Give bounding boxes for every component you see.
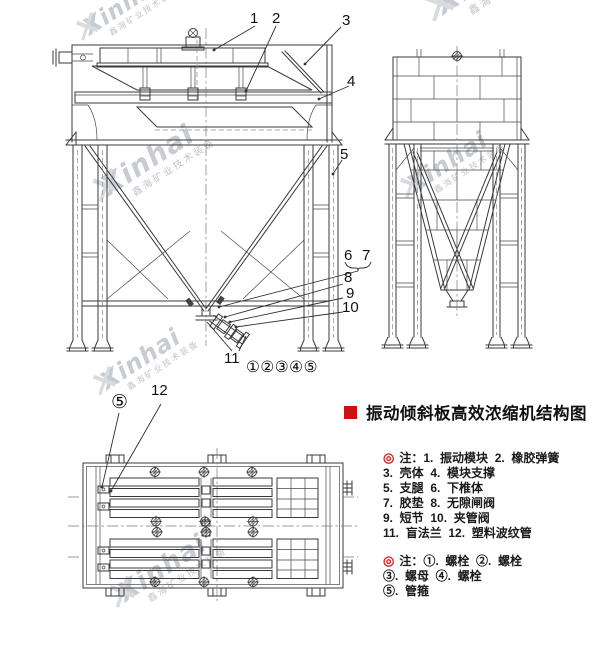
note-line: 3. 壳体 4. 模块支撑 — [383, 466, 605, 481]
note-text: 注：1. 振动模块 2. 橡胶弹簧 — [399, 451, 559, 465]
note-text: 注：①. 螺栓 ②. 螺栓 — [399, 554, 522, 568]
note-line: 7. 胶垫 8. 无隙闸阀 — [383, 496, 605, 511]
note-line: 11. 盲法兰 12. 塑料波纹管 — [383, 526, 605, 541]
red-square-bullet — [344, 406, 357, 419]
callout-10-pinch-valve: 10 — [342, 299, 359, 316]
front-elevation-view — [53, 28, 345, 351]
callout-2-rubber-spring: 2 — [272, 10, 280, 27]
plan-view — [68, 448, 358, 604]
note-line: ◎注：①. 螺栓 ②. 螺栓 — [383, 553, 605, 569]
note-line: ⑤. 管箍 — [383, 584, 605, 599]
callout-bolt-row: ①②③④⑤ — [246, 358, 318, 377]
callout-12-corrugated-pipe: 12 — [151, 382, 168, 399]
side-elevation-view — [382, 46, 533, 348]
callout-5-leg: 5 — [340, 146, 348, 163]
page-title: 振动倾斜板高效浓缩机结构图 — [366, 400, 587, 424]
callout-11-blind-flange: 11 — [224, 350, 240, 367]
note-line: ◎注：1. 振动模块 2. 橡胶弹簧 — [383, 450, 605, 466]
callout-6-lower-cone: 6 — [344, 247, 352, 264]
note-parts-list: ◎注：1. 振动模块 2. 橡胶弹簧 3. 壳体 4. 模块支撑 5. 支腿 6… — [383, 450, 605, 541]
callout-3-shell: 3 — [342, 12, 350, 29]
note-marker-icon: ◎ — [383, 553, 394, 568]
drawing-canvas: ✕ Xinhai 鑫海矿业技术装备 ✕ Xinhai 鑫海矿业技术装备 ✕ Xi… — [0, 0, 606, 650]
drawing-title-block: 振动倾斜板高效浓缩机结构图 — [344, 400, 587, 424]
callout-1-vibration-module: 1 — [250, 10, 258, 27]
note-fasteners-list: ◎注：①. 螺栓 ②. 螺栓 ③. 螺母 ④. 螺栓 ⑤. 管箍 — [383, 553, 605, 599]
note-line: 9. 短节 10. 夹管阀 — [383, 511, 605, 526]
note-marker-icon: ◎ — [383, 450, 394, 465]
callout-8-gate-valve: 8 — [344, 269, 352, 286]
callout-4-module-support: 4 — [347, 73, 355, 90]
note-line: ③. 螺母 ④. 螺栓 — [383, 569, 605, 584]
note-line: 5. 支腿 6. 下椎体 — [383, 481, 605, 496]
callout-5-pipe-clamp: ⑤ — [111, 391, 128, 414]
callout-7-rubber-pad: 7 — [362, 247, 370, 264]
